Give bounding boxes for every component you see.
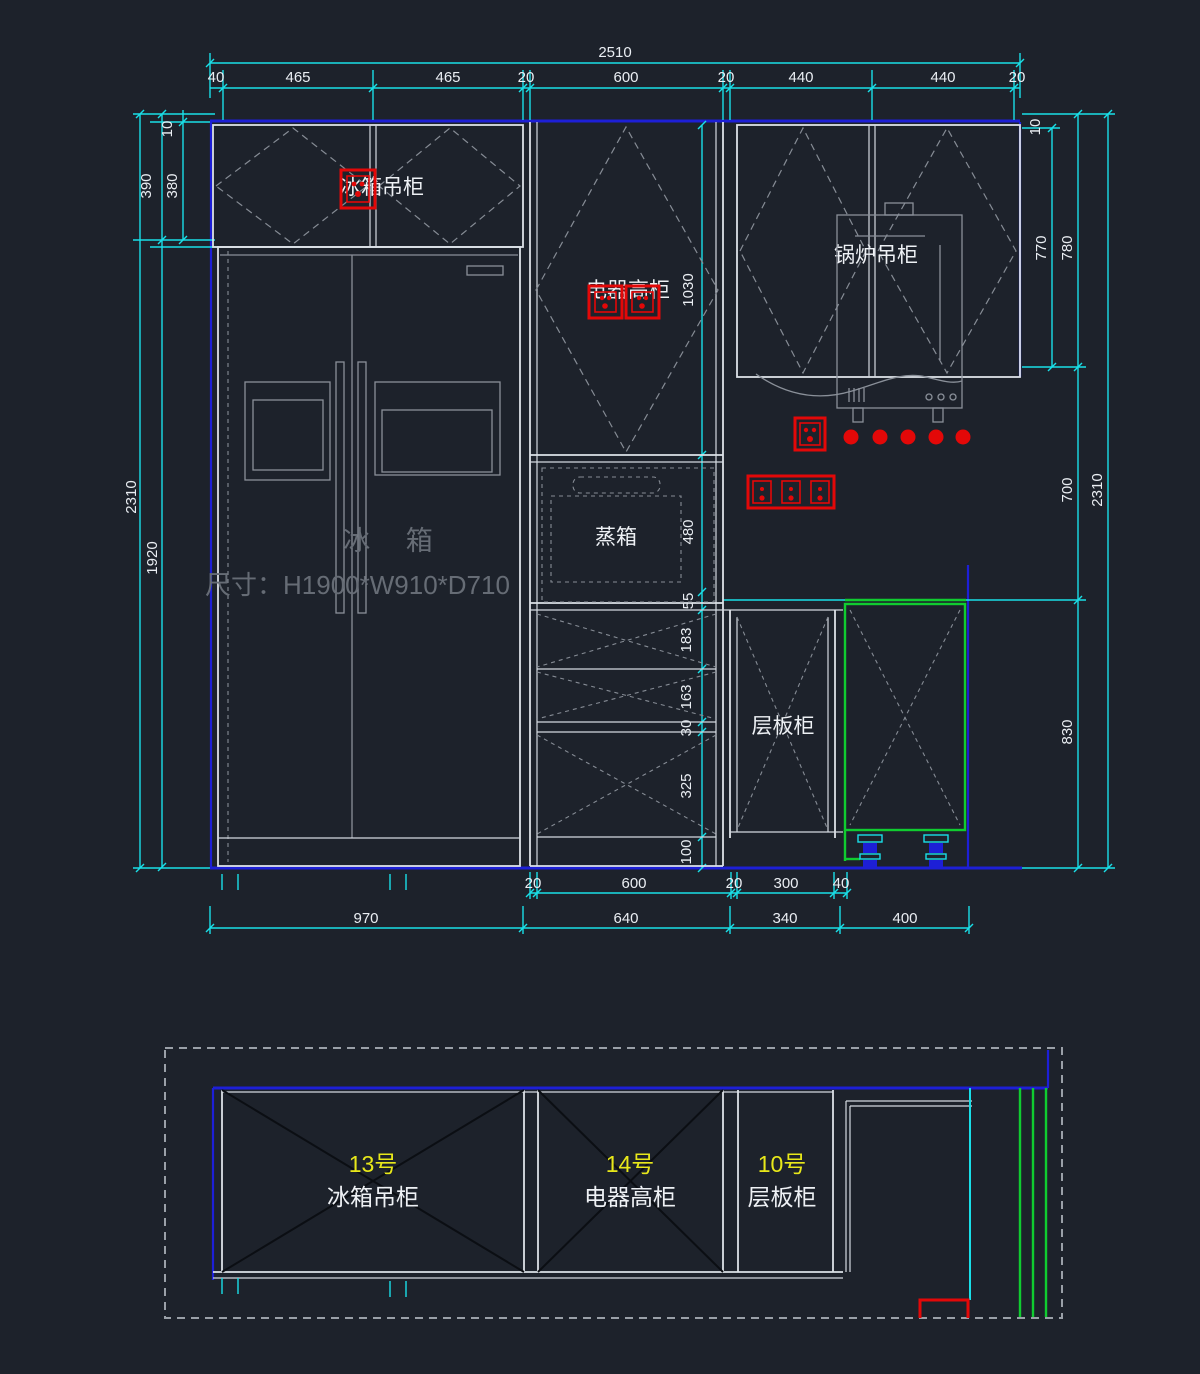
socket-icon <box>795 418 825 450</box>
dim-right-2310: 2310 <box>1089 473 1106 506</box>
plan-item-name: 冰箱吊柜 <box>327 1184 419 1210</box>
shelf-cabinet: 层板柜 <box>723 610 843 838</box>
boiler-wall-cabinet-label: 锅炉吊柜 <box>834 244 918 267</box>
dim-right-830: 830 <box>1059 719 1076 744</box>
appliance-tall-cabinet: 电器高柜 蒸箱 <box>530 122 723 866</box>
dim-mid-480: 480 <box>680 519 697 544</box>
dim-mid-55: 55 <box>680 593 697 610</box>
boiler-wall-cabinet: 锅炉吊柜 <box>737 125 1020 422</box>
dim-top-4: 600 <box>613 69 638 86</box>
dim-top-7: 440 <box>930 69 955 86</box>
fridge-watermark: 冰 箱 <box>343 526 447 556</box>
dim-bottom1-3: 300 <box>773 875 798 892</box>
dim-top-2: 465 <box>435 69 460 86</box>
dim-top-0: 40 <box>208 69 225 86</box>
dim-left-390: 390 <box>138 173 155 198</box>
dim-left-gap10: 10 <box>159 121 176 138</box>
room-outline <box>210 121 1022 868</box>
fridge-dispenser-right <box>375 382 500 475</box>
top-dimension-chain: 2510 40 465 465 20 600 20 440 440 20 <box>206 44 1025 120</box>
dim-mid-1030: 1030 <box>680 273 697 306</box>
middle-dimension-chain: 1030 480 55 183 163 30 325 100 <box>678 121 706 872</box>
socket-dots <box>844 430 971 445</box>
plan-item-no: 10号 <box>758 1151 807 1177</box>
dim-bottom1-4: 40 <box>833 875 850 892</box>
dim-top-5: 20 <box>718 69 735 86</box>
dim-top-8: 20 <box>1009 69 1026 86</box>
dim-bottom2-3: 400 <box>892 910 917 927</box>
dim-bottom1-1: 600 <box>621 875 646 892</box>
fridge: 冰 箱 尺寸：H1900*W910*D710 <box>205 247 520 866</box>
plan-item-name: 层板柜 <box>748 1184 817 1210</box>
fridge-wall-cabinet-label: 冰箱吊柜 <box>340 176 424 199</box>
dim-top-3: 20 <box>518 69 535 86</box>
dim-left-1920: 1920 <box>144 541 161 574</box>
plan-item-name: 电器高柜 <box>584 1184 676 1210</box>
fridge-vent <box>467 266 503 275</box>
dim-left-2310: 2310 <box>123 480 140 513</box>
dim-top-1: 465 <box>285 69 310 86</box>
dim-right-gap10: 10 <box>1027 119 1044 136</box>
dim-right-770: 770 <box>1033 235 1050 260</box>
left-dimension-chain: 10 390 380 2310 1920 <box>123 110 218 872</box>
plan-red-marker <box>920 1300 968 1318</box>
corner-base-cabinet <box>845 600 966 867</box>
plan-item-no: 13号 <box>349 1151 398 1177</box>
dim-bottom2-2: 340 <box>772 910 797 927</box>
dim-mid-163: 163 <box>678 684 695 709</box>
dim-bottom2-1: 640 <box>613 910 638 927</box>
dim-mid-325: 325 <box>678 773 695 798</box>
fridge-dispenser-left <box>245 382 330 480</box>
dim-top-6: 440 <box>788 69 813 86</box>
dim-bottom2-0: 970 <box>353 910 378 927</box>
plan-item-no: 14号 <box>606 1151 655 1177</box>
cad-drawing: 2510 40 465 465 20 600 20 440 440 20 <box>0 0 1200 1374</box>
dim-bottom1-0: 20 <box>525 875 542 892</box>
adjustable-foot <box>858 835 882 867</box>
dim-right-780: 780 <box>1059 235 1076 260</box>
dim-bottom1-2: 20 <box>726 875 743 892</box>
wall-sockets <box>748 418 971 508</box>
shelf-cabinet-label: 层板柜 <box>752 715 815 738</box>
cad-drawing-canvas: 2510 40 465 465 20 600 20 440 440 20 <box>0 0 1200 1374</box>
adjustable-foot <box>924 835 948 867</box>
fridge-wall-cabinet: 冰箱吊柜 <box>213 125 523 247</box>
triple-socket-icon <box>748 476 834 508</box>
dim-right-700: 700 <box>1059 477 1076 502</box>
dim-left-380: 380 <box>164 173 181 198</box>
fridge-size-note: 尺寸：H1900*W910*D710 <box>205 570 510 600</box>
bottom-dimension-chains: 20 600 20 300 40 970 640 340 400 <box>206 872 973 934</box>
boiler-unit <box>756 203 962 422</box>
steam-oven-label: 蒸箱 <box>595 526 637 549</box>
appliance-tall-cabinet-label: 电器高柜 <box>586 279 670 302</box>
dim-total-width: 2510 <box>598 44 631 61</box>
dim-mid-100: 100 <box>678 839 695 864</box>
dim-mid-183: 183 <box>678 627 695 652</box>
plan-view: 13号 冰箱吊柜 14号 电器高柜 10号 层板柜 <box>165 1048 1062 1318</box>
